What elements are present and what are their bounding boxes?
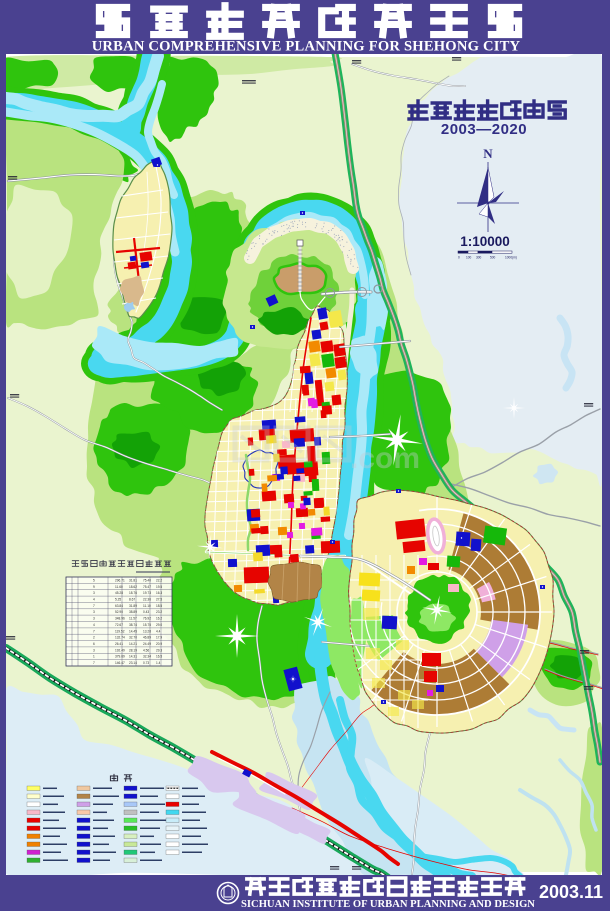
svg-text:38.74: 38.74	[129, 623, 137, 627]
svg-text:52.90: 52.90	[115, 610, 123, 614]
svg-text:2: 2	[93, 636, 95, 640]
svg-text:500: 500	[490, 256, 496, 260]
svg-text:32.70: 32.70	[129, 636, 137, 640]
svg-text:32.34: 32.34	[143, 655, 151, 659]
svg-text:18.76: 18.76	[129, 591, 137, 595]
svg-text:16.3: 16.3	[156, 591, 162, 595]
svg-text:75.40: 75.40	[143, 578, 151, 582]
svg-text:300: 300	[476, 256, 482, 260]
svg-text:296.71: 296.71	[115, 578, 125, 582]
svg-text:3: 3	[93, 591, 95, 595]
svg-text:26.41: 26.41	[115, 642, 123, 646]
svg-text:1: 1	[93, 655, 95, 659]
svg-text:N: N	[483, 146, 493, 161]
svg-text:63.84: 63.84	[115, 604, 123, 608]
svg-text:45.28: 45.28	[115, 591, 123, 595]
svg-text:132.74: 132.74	[115, 636, 125, 640]
svg-text:14.45: 14.45	[129, 629, 137, 633]
svg-text:19.5: 19.5	[156, 585, 162, 589]
svg-text:29.0: 29.0	[156, 623, 162, 627]
svg-text:7: 7	[93, 629, 95, 633]
svg-text:SICHUAN INSTITUTE OF URBAN PLA: SICHUAN INSTITUTE OF URBAN PLANNING AND …	[241, 899, 535, 910]
svg-text:46.89: 46.89	[143, 636, 151, 640]
svg-text:146.47: 146.47	[115, 661, 125, 665]
svg-text:28.19: 28.19	[129, 648, 137, 652]
svg-text:11.57: 11.57	[129, 617, 137, 621]
svg-text:14.31: 14.31	[129, 655, 137, 659]
svg-text:1000(m): 1000(m)	[505, 256, 517, 260]
svg-text:19.73: 19.73	[143, 591, 151, 595]
svg-text:4.4: 4.4	[156, 629, 161, 633]
svg-text:0: 0	[458, 256, 460, 260]
svg-text:16.2: 16.2	[156, 617, 162, 621]
svg-text:4: 4	[93, 598, 95, 602]
svg-text:1:10000: 1:10000	[460, 234, 510, 249]
svg-text:9: 9	[93, 585, 95, 589]
svg-text:348.96: 348.96	[115, 617, 125, 621]
svg-text:3: 3	[93, 610, 95, 614]
svg-text:11.10: 11.10	[143, 604, 151, 608]
svg-text:72.67: 72.67	[115, 623, 123, 627]
svg-text:4.56: 4.56	[143, 648, 149, 652]
svg-text:18.62: 18.62	[129, 585, 137, 589]
svg-text:.com: .com	[350, 442, 420, 475]
svg-text:31.81: 31.81	[129, 578, 137, 582]
svg-text:18.5: 18.5	[156, 604, 162, 608]
svg-text:22.36: 22.36	[143, 598, 151, 602]
svg-text:16.5: 16.5	[156, 655, 162, 659]
svg-text:2003.11: 2003.11	[539, 882, 603, 902]
svg-text:1.4: 1.4	[156, 661, 161, 665]
svg-text:0.73: 0.73	[143, 661, 149, 665]
svg-text:13.28: 13.28	[143, 629, 151, 633]
svg-text:5.25: 5.25	[115, 598, 121, 602]
svg-text:7: 7	[93, 661, 95, 665]
svg-text:24.49: 24.49	[143, 642, 151, 646]
svg-text:76.92: 76.92	[143, 617, 151, 621]
svg-text:192.49: 192.49	[115, 648, 125, 652]
svg-text:4: 4	[93, 623, 95, 627]
svg-text:379.69: 379.69	[115, 655, 125, 659]
svg-text:15.75: 15.75	[143, 623, 151, 627]
svg-text:11.60: 11.60	[115, 585, 123, 589]
svg-text:20.9: 20.9	[156, 642, 162, 646]
svg-text:3: 3	[93, 617, 95, 621]
svg-text:3: 3	[93, 648, 95, 652]
svg-text:7: 7	[93, 604, 95, 608]
svg-text:6: 6	[93, 642, 95, 646]
svg-text:8.67: 8.67	[129, 598, 135, 602]
svg-text:119.52: 119.52	[115, 629, 125, 633]
svg-text:17.9: 17.9	[156, 636, 162, 640]
svg-text:2003—2020: 2003—2020	[441, 121, 527, 138]
svg-text:5: 5	[93, 578, 95, 582]
svg-text:38.89: 38.89	[129, 610, 137, 614]
svg-text:100: 100	[466, 256, 472, 260]
svg-text:14.21: 14.21	[129, 642, 137, 646]
svg-text:75.47: 75.47	[143, 585, 151, 589]
svg-text:22.2: 22.2	[156, 578, 162, 582]
svg-text:23.14: 23.14	[129, 661, 137, 665]
svg-text:29.3: 29.3	[156, 648, 162, 652]
svg-text:31.89: 31.89	[129, 604, 137, 608]
svg-text:27.5: 27.5	[156, 598, 162, 602]
svg-text:URBAN COMPREHENSIVE PLANNING F: URBAN COMPREHENSIVE PLANNING FOR SHEHONG…	[92, 39, 521, 55]
svg-text:23.2: 23.2	[156, 610, 162, 614]
svg-text:0.43: 0.43	[143, 610, 149, 614]
